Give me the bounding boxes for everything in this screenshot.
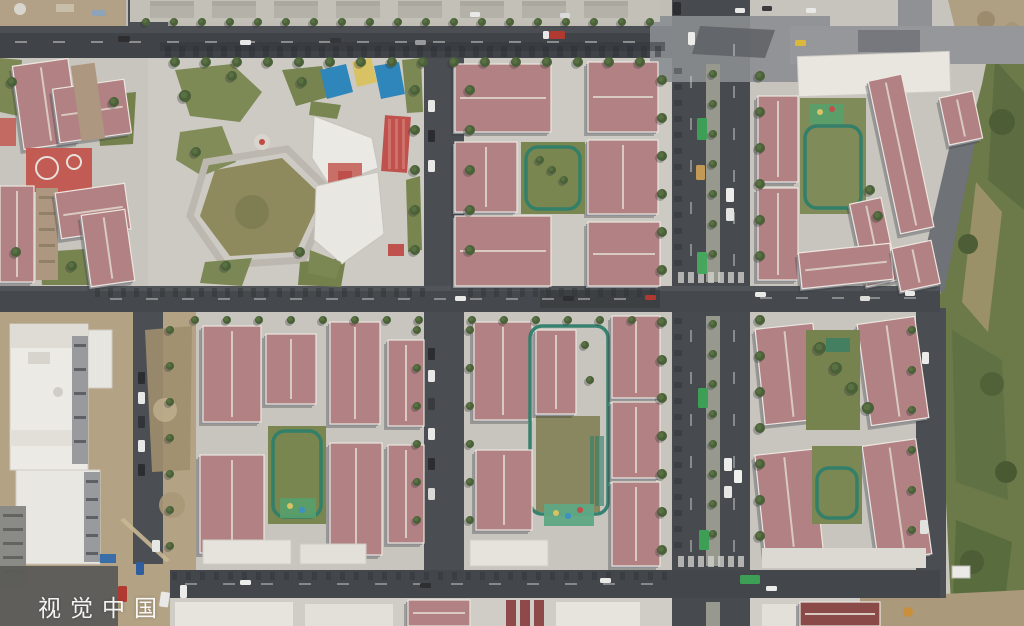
tree-shadow	[674, 318, 682, 324]
tree-highlight	[419, 58, 425, 64]
patch	[995, 461, 1017, 483]
tree-highlight	[288, 317, 292, 321]
tree-shadow	[578, 572, 583, 580]
patch	[826, 338, 850, 352]
tree-highlight	[636, 58, 642, 64]
tree-highlight	[466, 246, 472, 252]
car	[600, 578, 611, 583]
car	[428, 428, 435, 440]
lane-marking	[690, 160, 692, 172]
tree-shadow	[407, 288, 412, 297]
tree-highlight	[411, 86, 417, 92]
tree-highlight	[710, 221, 714, 225]
patch	[56, 4, 74, 12]
window-row	[3, 528, 23, 531]
tree-shadow	[674, 526, 682, 532]
tree-shadow	[674, 84, 682, 90]
tree-highlight	[864, 404, 871, 411]
tree-shadow	[674, 212, 682, 218]
tree-highlight	[171, 58, 177, 64]
tree-shadow	[277, 288, 282, 297]
tree-highlight	[658, 190, 664, 196]
tree-highlight	[227, 19, 231, 23]
patch	[287, 503, 293, 509]
tree-highlight	[256, 317, 260, 321]
car	[563, 296, 574, 301]
road-median	[706, 602, 720, 626]
patch	[858, 30, 920, 52]
lane-marking	[690, 414, 692, 426]
tree-highlight	[909, 447, 913, 451]
car	[806, 8, 816, 13]
tree-shadow	[508, 572, 513, 580]
tree-shadow	[242, 572, 247, 580]
tree-shadow	[674, 334, 682, 340]
tree-shadow	[501, 46, 507, 57]
lane-marking	[733, 540, 735, 552]
track-lanes	[595, 436, 599, 506]
tree-highlight	[549, 167, 553, 171]
tree-highlight	[192, 148, 198, 154]
tree-shadow	[529, 46, 535, 57]
tree-shadow	[674, 510, 682, 516]
car	[726, 188, 734, 202]
crosswalk	[708, 272, 714, 283]
tree-shadow	[674, 68, 682, 74]
lane-marking	[470, 298, 482, 300]
car	[860, 296, 870, 301]
tree-shadow	[312, 572, 317, 580]
tree-shadow	[238, 288, 243, 297]
tree-highlight	[143, 19, 147, 23]
lane-marking	[690, 202, 692, 214]
tree-shadow	[674, 398, 682, 404]
tree-shadow	[487, 46, 493, 57]
lane-marking	[690, 244, 692, 256]
tree-highlight	[467, 365, 471, 369]
crosswalk	[738, 272, 744, 283]
apartment-roof	[584, 62, 658, 136]
tree-shadow	[298, 572, 303, 580]
tree-shadow	[403, 46, 409, 57]
lane-marking	[690, 330, 692, 342]
tree-shadow	[355, 288, 360, 297]
patch	[203, 540, 291, 564]
tree-highlight	[710, 531, 714, 535]
window-row	[3, 542, 23, 545]
tree-shadow	[394, 288, 399, 297]
tree-highlight	[658, 318, 664, 324]
car	[724, 458, 732, 471]
lane-marking	[733, 128, 735, 140]
lane-marking	[547, 41, 559, 43]
car	[138, 416, 145, 428]
patch	[235, 195, 269, 229]
lane-marking	[185, 583, 197, 585]
mark	[398, 1, 442, 6]
apartment-roof	[199, 326, 261, 426]
crosswalk	[738, 556, 744, 567]
tree-highlight	[167, 507, 171, 511]
lane-marking	[690, 372, 692, 384]
tree-highlight	[561, 177, 565, 181]
lane-marking	[796, 297, 808, 299]
patch	[259, 139, 265, 145]
patch	[88, 330, 112, 388]
lane-marking	[509, 41, 521, 43]
tree-highlight	[710, 351, 714, 355]
window-row	[3, 556, 23, 559]
tree-shadow	[212, 288, 217, 297]
tree-shadow	[389, 46, 395, 57]
tree-shadow	[108, 288, 113, 297]
apartment-roof	[404, 600, 470, 626]
sports-court	[388, 244, 404, 256]
tree-shadow	[641, 46, 647, 57]
crosswalk	[728, 556, 734, 567]
tree-shadow	[214, 572, 219, 580]
tree-shadow	[543, 46, 549, 57]
bus	[697, 252, 707, 274]
tree-shadow	[381, 288, 386, 297]
tree-shadow	[424, 572, 429, 580]
tree-highlight	[909, 527, 913, 531]
tree-shadow	[172, 572, 177, 580]
crosswalk	[688, 272, 694, 283]
lane-marking	[690, 498, 692, 510]
tree-highlight	[326, 58, 332, 64]
car	[138, 440, 145, 452]
maroon-roofs	[520, 600, 530, 626]
lane-marking	[733, 498, 735, 510]
tree-highlight	[658, 394, 664, 400]
apartment-roof	[584, 222, 660, 290]
mark	[402, 119, 405, 169]
tree-shadow	[557, 46, 563, 57]
window-row	[86, 480, 98, 483]
tree-highlight	[466, 126, 472, 132]
tree-highlight	[909, 327, 913, 331]
tree-highlight	[414, 365, 418, 369]
road-median	[706, 64, 720, 282]
car	[138, 372, 145, 384]
window-row	[3, 514, 23, 517]
tree-highlight	[756, 180, 762, 186]
tree-shadow	[674, 164, 682, 170]
tree-highlight	[411, 166, 417, 172]
tree-shadow	[674, 100, 682, 106]
lane-marking	[733, 456, 735, 468]
tree-highlight	[255, 19, 259, 23]
trailer	[952, 566, 970, 578]
tree-highlight	[658, 76, 664, 82]
truck	[549, 31, 565, 39]
car	[428, 348, 435, 360]
car	[428, 370, 435, 382]
tree-shadow	[160, 288, 165, 297]
tree-highlight	[167, 327, 171, 331]
tree-shadow	[410, 572, 415, 580]
tree-shadow	[674, 446, 682, 452]
lane-marking	[489, 583, 501, 585]
tree-highlight	[866, 186, 872, 192]
tree-shadow	[290, 288, 295, 297]
tree-highlight	[283, 19, 287, 23]
excavator	[903, 607, 913, 617]
tree-highlight	[467, 517, 471, 521]
apartment-roof	[608, 482, 660, 570]
patch	[553, 510, 559, 516]
tree-highlight	[233, 58, 239, 64]
car	[543, 31, 549, 39]
lane-marking	[290, 298, 302, 300]
tree-highlight	[582, 342, 586, 346]
tree-shadow	[342, 288, 347, 297]
tree-highlight	[710, 251, 714, 255]
crosswalk	[678, 556, 684, 567]
tree-highlight	[423, 19, 427, 23]
car	[726, 208, 734, 221]
lane-marking	[603, 583, 615, 585]
tree-highlight	[414, 517, 418, 521]
tree-shadow	[674, 478, 682, 484]
crosswalk	[718, 272, 724, 283]
lane-marking	[319, 41, 331, 43]
tree-shadow	[303, 288, 308, 297]
apartment-roof	[584, 140, 658, 218]
lane-marking	[362, 298, 374, 300]
lane-marking	[146, 298, 158, 300]
lane-marking	[471, 41, 483, 43]
patch	[14, 3, 26, 15]
tree-highlight	[605, 58, 611, 64]
apartment-roof	[262, 334, 316, 408]
lane-marking	[527, 583, 539, 585]
tree-highlight	[68, 262, 74, 268]
tree-shadow	[536, 572, 541, 580]
tree-highlight	[597, 317, 601, 321]
tree-shadow	[347, 46, 353, 57]
apartment-roof	[384, 340, 424, 430]
patch	[130, 0, 660, 22]
mark	[395, 119, 398, 169]
tree-highlight	[710, 411, 714, 415]
window-row	[86, 516, 98, 519]
taxi	[795, 40, 806, 46]
lane-marking	[733, 86, 735, 98]
tree-highlight	[411, 246, 417, 252]
tree-highlight	[507, 19, 511, 23]
tree-shadow	[368, 288, 373, 297]
car	[766, 586, 777, 591]
tree-shadow	[396, 572, 401, 580]
window-row	[74, 416, 86, 419]
road	[898, 0, 932, 28]
tree-highlight	[167, 435, 171, 439]
car	[645, 295, 656, 300]
crosswalk	[698, 556, 704, 567]
car	[152, 540, 160, 552]
lane-marking	[337, 583, 349, 585]
tree-highlight	[658, 356, 664, 362]
window-row	[74, 392, 86, 395]
truck	[136, 562, 144, 575]
lane-marking	[565, 583, 577, 585]
facade	[72, 336, 88, 464]
mark	[150, 1, 194, 6]
tree-shadow	[251, 288, 256, 297]
mark	[274, 1, 318, 6]
patch	[92, 10, 106, 16]
tree-shadow	[648, 572, 653, 580]
tree-highlight	[320, 317, 324, 321]
tree-shadow	[228, 572, 233, 580]
tree-shadow	[186, 572, 191, 580]
tree-highlight	[339, 19, 343, 23]
apartment-roof	[796, 602, 880, 626]
lane-marking	[398, 298, 410, 300]
car	[428, 488, 435, 500]
apartment-roof	[470, 322, 532, 424]
lane-marking	[690, 76, 692, 88]
car	[428, 130, 435, 142]
tree-shadow	[494, 572, 499, 580]
tree-shadow	[674, 366, 682, 372]
tree-shadow	[326, 572, 331, 580]
lane-marking	[299, 583, 311, 585]
tree-highlight	[357, 58, 363, 64]
tree-highlight	[199, 19, 203, 23]
car	[455, 296, 466, 301]
crosswalk	[688, 556, 694, 567]
crosswalk	[708, 556, 714, 567]
tree-highlight	[414, 441, 418, 445]
tree-highlight	[710, 501, 714, 505]
tree-shadow	[445, 46, 451, 57]
tree-shadow	[674, 116, 682, 122]
car	[118, 36, 130, 42]
patch	[175, 602, 293, 626]
crosswalk	[728, 272, 734, 283]
lane-marking	[690, 456, 692, 468]
tree-highlight	[479, 19, 483, 23]
patch	[958, 234, 978, 254]
tree-shadow	[572, 288, 577, 297]
mark	[212, 1, 256, 6]
tree-highlight	[756, 388, 762, 394]
tree-shadow	[550, 572, 555, 580]
aerial-photo-stage: 视觉中国	[0, 0, 1024, 626]
lane-marking	[129, 41, 141, 43]
tree-shadow	[585, 46, 591, 57]
tree-highlight	[909, 407, 913, 411]
tree-highlight	[710, 101, 714, 105]
tree-shadow	[599, 46, 605, 57]
tree-highlight	[658, 228, 664, 234]
tree-highlight	[658, 546, 664, 552]
patch	[159, 492, 185, 518]
car	[560, 13, 570, 18]
tree-shadow	[263, 46, 269, 57]
tree-shadow	[674, 462, 682, 468]
tree-shadow	[674, 542, 682, 548]
tree-shadow	[438, 572, 443, 580]
tree-highlight	[756, 532, 762, 538]
patch	[299, 507, 305, 513]
tree-highlight	[367, 19, 371, 23]
tree-highlight	[756, 424, 762, 430]
playground	[810, 104, 844, 124]
tree-shadow	[354, 572, 359, 580]
patch	[300, 544, 366, 564]
lane-marking	[832, 297, 844, 299]
tree-highlight	[832, 364, 839, 371]
tree-shadow	[173, 288, 178, 297]
mark	[522, 1, 566, 6]
mark	[460, 1, 504, 6]
tree-highlight	[167, 363, 171, 367]
mark	[39, 212, 55, 215]
car	[138, 392, 145, 404]
tree-shadow	[305, 46, 311, 57]
tree-highlight	[467, 479, 471, 483]
lane-marking	[506, 298, 518, 300]
tree-shadow	[559, 288, 564, 297]
tree-highlight	[537, 157, 541, 161]
lane-marking	[578, 298, 590, 300]
tree-shadow	[627, 46, 633, 57]
tree-highlight	[563, 19, 567, 23]
tree-shadow	[199, 288, 204, 297]
playground	[280, 498, 316, 518]
tree-shadow	[375, 46, 381, 57]
patch	[28, 352, 50, 364]
tree-highlight	[658, 470, 664, 476]
tree-highlight	[756, 252, 762, 258]
crosswalk	[718, 556, 724, 567]
apartment-roof	[532, 330, 576, 418]
tree-highlight	[384, 317, 388, 321]
tree-highlight	[629, 317, 633, 321]
lane-marking	[904, 297, 916, 299]
tree-highlight	[395, 19, 399, 23]
tree-highlight	[171, 19, 175, 23]
tarp	[100, 554, 116, 563]
apartment-roof	[451, 64, 551, 136]
car	[673, 2, 681, 15]
tree-highlight	[466, 86, 472, 92]
lane-marking	[733, 170, 735, 182]
tree-highlight	[658, 152, 664, 158]
tree-highlight	[909, 367, 913, 371]
courtyard	[521, 142, 585, 214]
maroon-roofs	[506, 600, 516, 626]
patch	[762, 548, 926, 568]
maroon-roofs	[534, 600, 544, 626]
patch	[53, 387, 63, 397]
tree-highlight	[414, 479, 418, 483]
lane-marking	[218, 298, 230, 300]
bus	[740, 575, 760, 584]
tree-highlight	[228, 72, 234, 78]
lane-marking	[760, 297, 772, 299]
track-lanes	[590, 436, 594, 506]
tree-shadow	[420, 288, 425, 297]
tree-shadow	[147, 288, 152, 297]
tree-highlight	[658, 114, 664, 120]
tree-highlight	[466, 166, 472, 172]
tree-highlight	[658, 432, 664, 438]
